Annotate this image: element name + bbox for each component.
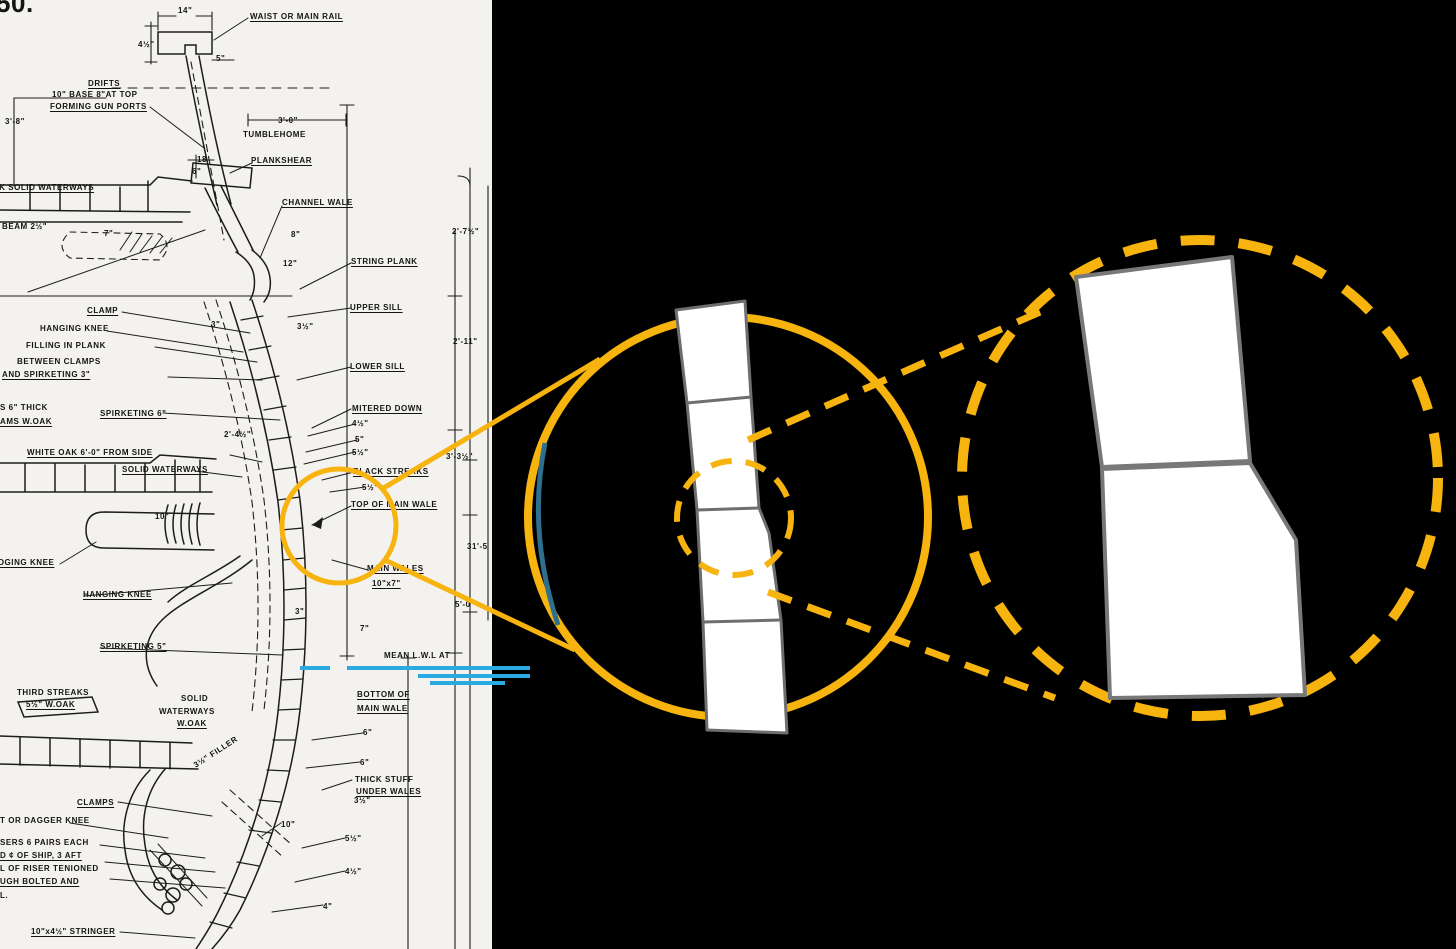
blueprint-label: STRING PLANK (351, 257, 418, 266)
blueprint-label: 8" (291, 230, 300, 239)
blueprint-label: 5'-0" (455, 600, 475, 609)
blueprint-label: 4½" (352, 419, 369, 428)
blueprint-label: 10" (281, 820, 295, 829)
blueprint-label: MAIN WALE (357, 704, 408, 713)
frame-arc (538, 443, 558, 625)
blueprint-label: T OR DAGGER KNEE (0, 816, 90, 825)
blueprint-label: W.OAK (177, 719, 207, 728)
blueprint-label: BOTTOM OF (357, 690, 410, 699)
plank-detail-top (1076, 257, 1250, 467)
blueprint-label: 3'-8" (5, 117, 25, 126)
blueprint-label: TOP OF MAIN WALE (351, 500, 437, 509)
blueprint-label: OAK SOLID WATERWAYS (0, 183, 94, 192)
blueprint-label: 6" (363, 728, 372, 737)
blueprint-label: HANGING KNEE (83, 590, 152, 599)
blueprint-label: 5½" (345, 834, 362, 843)
zoom-circle-mid (528, 317, 928, 717)
blueprint-label: AND SPIRKETING 3" (2, 370, 90, 379)
zoom-connector-dashed (748, 312, 1055, 698)
blueprint-label: 5½" (352, 448, 369, 457)
blueprint-label: 10" (155, 512, 169, 521)
blueprint-label: FORMING GUN PORTS (50, 102, 147, 111)
blueprint-label: 18 (197, 155, 207, 164)
blueprint-label: 4½" (138, 40, 155, 49)
annotated-blueprint-page: { "meta": { "description": "Scanned ship… (0, 0, 1456, 949)
blueprint-label: 5½" W.OAK (26, 700, 75, 709)
blueprint-label: 3" (211, 320, 220, 329)
blueprint-label: 6" (360, 758, 369, 767)
blueprint-label: HANGING KNEE (40, 324, 109, 333)
blueprint-label: L. (0, 891, 8, 900)
blueprint-label: 31'-5 (467, 542, 488, 551)
blueprint-label: 10"x7" (372, 579, 401, 588)
blueprint-label: 2'-4½" (224, 430, 251, 439)
blueprint-label: 6" (192, 167, 201, 176)
blueprint-label: FILLING IN PLANK (26, 341, 106, 350)
blueprint-label: UPPER SILL (350, 303, 403, 312)
blueprint-label: 5" (355, 435, 364, 444)
blueprint-label: 12" (283, 259, 297, 268)
blueprint-label: 50. (0, 0, 34, 19)
plank-detail-bottom (1102, 463, 1305, 698)
blueprint-label: 3'-0" (278, 116, 298, 125)
blueprint-label: LOWER SILL (350, 362, 405, 371)
plank-strip (676, 301, 787, 733)
blueprint-label: L OF RISER TENIONED (0, 864, 99, 873)
blueprint-label: CLAMP (87, 306, 118, 315)
blueprint-label: SOLID WATERWAYS (122, 465, 208, 474)
blueprint-label: 10" BASE 8"AT TOP (52, 90, 138, 99)
blueprint-label: SPIRKETING 6" (100, 409, 167, 418)
blueprint-label: SPIRKETING 5" (100, 642, 167, 651)
blueprint-label: SERS 6 PAIRS EACH (0, 838, 89, 847)
blueprint-label: PLANKSHEAR (251, 156, 312, 165)
blueprint-label: MAIN WALES (367, 564, 424, 573)
blueprint-label: DRIFTS (88, 79, 120, 88)
blueprint-label: BEAM 2½" (2, 222, 47, 231)
blueprint-label: S 6" THICK (0, 403, 48, 412)
blueprint-label: 5" (216, 54, 225, 63)
labels-layer: 50.14"WAIST OR MAIN RAIL4½"5"DRIFTS10" B… (0, 0, 492, 949)
blueprint-label: UNDER WALES (356, 787, 421, 796)
blueprint-label: 2'-7½" (452, 227, 479, 236)
blueprint-label: LODGING KNEE (0, 558, 54, 567)
blueprint-label: BLACK STREAKS (353, 467, 429, 476)
blueprint-label: 10"x4½" STRINGER (31, 927, 115, 936)
blueprint-label: 4½" (345, 867, 362, 876)
blueprint-label: 14" (178, 6, 192, 15)
blueprint-label: D ¢ OF SHIP, 3 AFT (0, 851, 82, 860)
blueprint-label: 7" (104, 229, 113, 238)
blueprint-label: WAIST OR MAIN RAIL (250, 12, 343, 21)
blueprint-label: 3½" FILLER (192, 734, 239, 769)
blueprint-label: CHANNEL WALE (282, 198, 353, 207)
blueprint-label: CLAMPS (77, 798, 114, 807)
blueprint-label: THIRD STREAKS (17, 688, 89, 697)
blueprint-label: 3" (295, 607, 304, 616)
blueprint-label: BETWEEN CLAMPS (17, 357, 101, 366)
blueprint-label: MITERED DOWN (352, 404, 422, 413)
blueprint-label: 3½" (354, 796, 371, 805)
blueprint-label: TUMBLEHOME (243, 130, 306, 139)
blueprint-panel: 50.14"WAIST OR MAIN RAIL4½"5"DRIFTS10" B… (0, 0, 492, 949)
blueprint-label: THICK STUFF (355, 775, 414, 784)
blueprint-label: UGH BOLTED AND (0, 877, 79, 886)
blueprint-label: 4" (323, 902, 332, 911)
blueprint-label: MEAN L.W.L AT (384, 651, 450, 660)
zoom-circle-detail (962, 240, 1438, 716)
blueprint-label: 7" (360, 624, 369, 633)
blueprint-label: 3½" (297, 322, 314, 331)
blueprint-label: 3'-3½" (446, 452, 473, 461)
blueprint-label: 2'-11" (453, 337, 478, 346)
blueprint-label: WHITE OAK 6'-0" FROM SIDE (27, 448, 153, 457)
blueprint-label: 5½" (362, 483, 379, 492)
zoom-circle-joint (677, 461, 791, 575)
blueprint-label: AMS W.OAK (0, 417, 52, 426)
blueprint-label: SOLID (181, 694, 208, 703)
blueprint-label: WATERWAYS (159, 707, 215, 716)
